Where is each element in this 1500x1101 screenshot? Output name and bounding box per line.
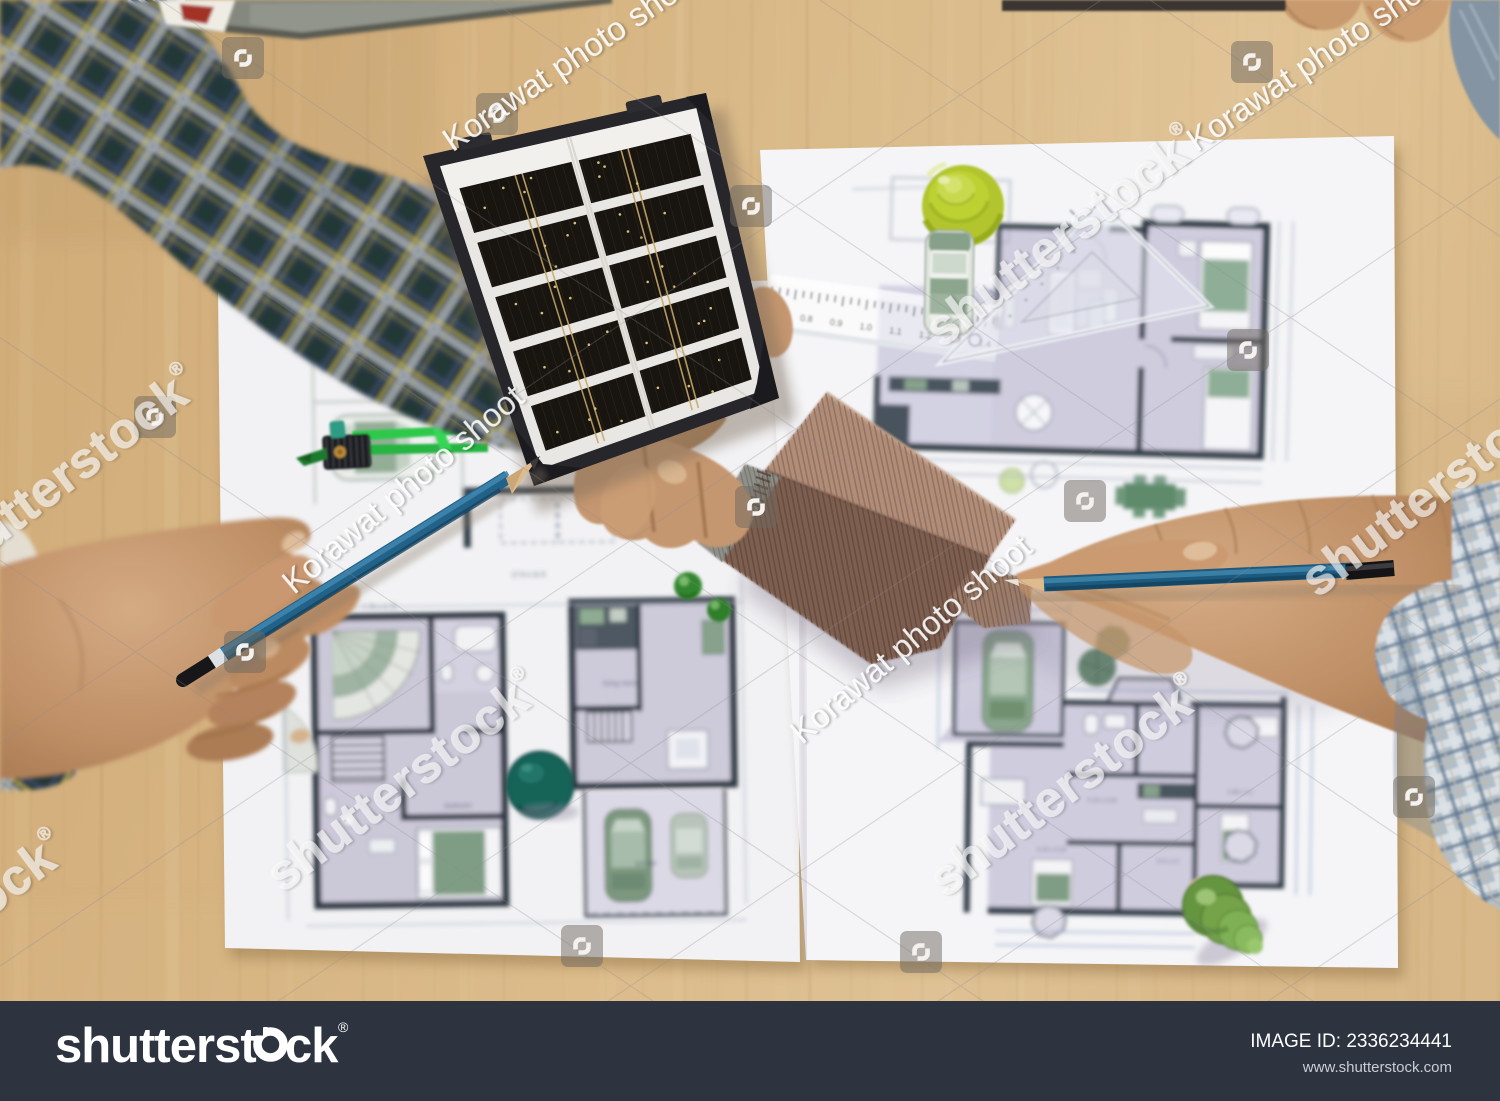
svg-text:1.0: 1.0	[859, 321, 873, 333]
svg-text:1.1: 1.1	[889, 325, 903, 337]
svg-text:IMAGE ID: 2336234441: IMAGE ID: 2336234441	[1250, 1031, 1452, 1052]
svg-text:0.8: 0.8	[800, 313, 814, 325]
svg-text:garage: garage	[635, 860, 657, 867]
svg-text:bedroom: bedroom	[445, 803, 473, 810]
svg-text:shutterst: shutterst	[55, 1019, 256, 1073]
svg-text:3.4 x 2.2: 3.4 x 2.2	[1156, 859, 1180, 865]
svg-text:0.9: 0.9	[829, 317, 843, 329]
svg-text:living room: living room	[603, 680, 637, 687]
svg-text:17.0 x 11.0: 17.0 x 11.0	[511, 572, 545, 579]
svg-text:www.shutterstock.com: www.shutterstock.com	[1302, 1059, 1452, 1076]
svg-text:®: ®	[338, 1019, 349, 1035]
svg-text:4.10 x 3.20: 4.10 x 3.20	[1036, 847, 1066, 853]
svg-text:ck: ck	[285, 1019, 339, 1073]
